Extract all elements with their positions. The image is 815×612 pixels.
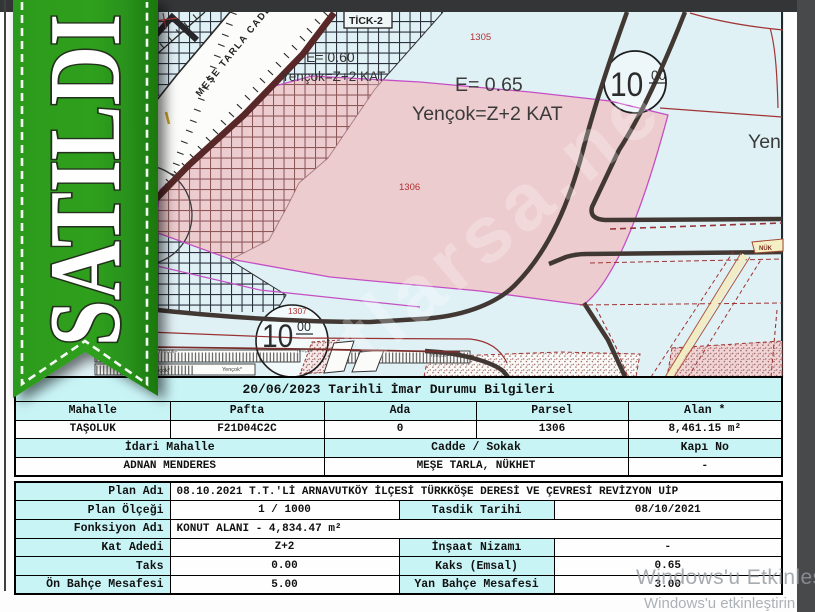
svg-text:Yençok: Yençok — [296, 348, 313, 354]
svg-text:E= 0.65: E= 0.65 — [455, 74, 523, 96]
svg-text:TİCK-2: TİCK-2 — [349, 14, 383, 27]
svg-text:Yen: Yen — [748, 131, 781, 153]
svg-text:Yençok*: Yençok* — [222, 367, 243, 373]
svg-text:Yençok=Z+2 KAT: Yençok=Z+2 KAT — [281, 69, 385, 84]
svg-text:SATILDI: SATILDI — [29, 14, 142, 346]
svg-text:NÜK: NÜK — [759, 245, 773, 252]
svg-text:Yençok=Z+2 KAT: Yençok=Z+2 KAT — [412, 103, 563, 125]
svg-text:1305: 1305 — [470, 32, 491, 43]
svg-text:1307: 1307 — [288, 306, 307, 316]
svg-text:00: 00 — [651, 68, 666, 83]
svg-text:10: 10 — [262, 319, 293, 354]
svg-text:Yençok=: Yençok= — [430, 353, 449, 359]
svg-text:00: 00 — [297, 320, 311, 334]
svg-text:1306: 1306 — [399, 182, 420, 193]
svg-text:E= 0.60: E= 0.60 — [306, 49, 355, 65]
